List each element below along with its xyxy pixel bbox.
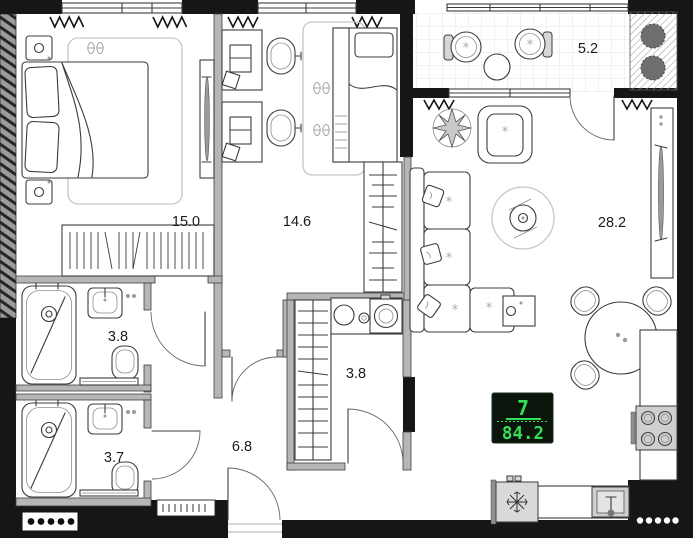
seat-mark-icon: * [463, 41, 470, 56]
snowflake-icon [507, 492, 527, 512]
plant-icon [641, 24, 665, 48]
door-laundry-bathroom [348, 409, 403, 463]
label-bathroom-second-area: 3.7 [104, 450, 124, 466]
kitchen-sink-icon [592, 487, 629, 517]
display-floor-number: 7 [517, 396, 529, 420]
plant-star-icon [433, 109, 471, 147]
svg-text:*: * [502, 125, 509, 140]
floor-plan: * * * [0, 0, 693, 538]
bedroom-furniture [22, 36, 214, 276]
bathroom-second-fixtures [22, 400, 138, 497]
laundry-counter [331, 295, 402, 334]
insulated-wall-hatch [0, 14, 16, 318]
pillow [420, 243, 442, 265]
nightstand [26, 180, 52, 204]
nightstand [26, 36, 52, 60]
kitchen-counter [640, 330, 677, 480]
radiator-icon [50, 17, 84, 27]
door-kids-room [232, 357, 277, 401]
display-total-area: 84.2 [502, 424, 544, 444]
kids-bed [333, 28, 397, 162]
washing-machine-icon [370, 295, 402, 333]
toilet [80, 462, 138, 496]
washbasin [88, 288, 136, 318]
side-table [503, 296, 535, 326]
desk-chair [267, 38, 301, 74]
pillow [355, 33, 393, 57]
hallway-items [157, 500, 215, 516]
door-balcony [570, 96, 614, 140]
slippers-icon [314, 83, 329, 136]
tv-console [651, 108, 673, 278]
svg-text:*: * [452, 303, 459, 318]
floor-plan-drawing: * * * [0, 0, 693, 538]
radiator-icon [622, 100, 652, 109]
label-balcony-area: 5.2 [578, 41, 598, 57]
plant-icon [641, 56, 665, 80]
door-entrance [228, 468, 282, 532]
kids-room-furniture [222, 22, 402, 292]
label-bathroom-main-area: 3.8 [108, 329, 128, 345]
shoe-bench [157, 500, 215, 516]
fridge-icon [491, 476, 538, 524]
door-bathroom-main [151, 312, 205, 366]
label-laundry-bathroom-area: 3.8 [346, 366, 366, 382]
label-kids-room-area: 14.6 [283, 214, 311, 230]
tv-icon [658, 146, 663, 240]
balcony-plants [630, 12, 677, 90]
balcony-table [484, 54, 510, 80]
living-room-furniture: * * * * * [410, 106, 677, 524]
armchair: * [478, 106, 532, 163]
kids-room-window [258, 3, 356, 13]
door-bathroom-second [152, 431, 200, 479]
washbasin [88, 404, 136, 434]
seat-mark-icon: * [527, 38, 534, 53]
living-balcony-window [449, 89, 570, 97]
tv-icon [205, 77, 210, 161]
radiator-icon [153, 17, 187, 27]
coffee-table [509, 199, 537, 238]
bathtub [22, 283, 76, 384]
balcony-glazing [447, 4, 628, 11]
desk [222, 102, 262, 162]
toilet [80, 346, 138, 385]
bathtub [22, 400, 76, 497]
svg-text:*: * [486, 301, 493, 316]
label-living-area: 28.2 [598, 215, 626, 231]
radiator-icon [424, 100, 454, 109]
radiator-icon [228, 17, 258, 27]
svg-text:*: * [446, 195, 453, 210]
label-bedroom-area: 15.0 [172, 214, 200, 230]
balcony-chair: * [444, 32, 481, 62]
kids-wardrobe [364, 162, 402, 292]
bedroom-window [62, 3, 182, 13]
shelving-rack [295, 300, 331, 460]
stove-icon [631, 406, 677, 450]
dots-marker-left [22, 512, 78, 531]
svg-text:*: * [446, 251, 453, 266]
sofa: * * * * [410, 168, 514, 332]
slippers-icon [88, 43, 103, 54]
dots-marker-right [632, 511, 679, 530]
bedroom-tv-unit [200, 60, 214, 178]
desk [222, 30, 262, 90]
floor-area-display: 7 84.2 [492, 393, 553, 444]
double-bed [22, 62, 148, 178]
bedroom-wardrobe [62, 225, 214, 276]
balcony-chair: * [515, 29, 552, 59]
label-hallway-area: 6.8 [232, 439, 252, 455]
desk-chair [267, 110, 301, 146]
